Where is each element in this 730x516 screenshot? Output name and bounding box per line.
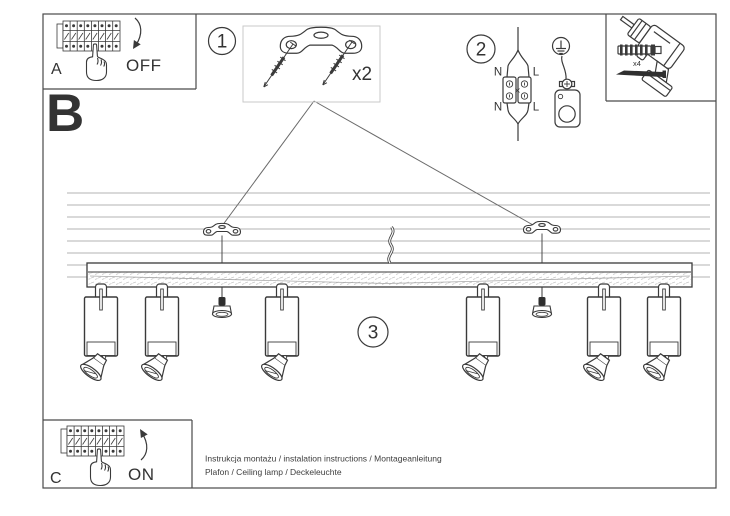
wire-label-l-bottom: L	[533, 102, 540, 114]
breaker-panel-icon-c	[61, 426, 124, 456]
breaker-panel-icon	[57, 21, 120, 51]
leader-lines	[222, 101, 533, 226]
section-c-box: C ON	[43, 420, 192, 488]
off-label: OFF	[126, 56, 162, 75]
spotlight-2	[139, 284, 178, 383]
instruction-drawing: 3 A OFF B 1 x2 2	[0, 0, 730, 516]
step2-number-label: 2	[476, 40, 487, 61]
spotlight-3	[259, 284, 298, 383]
section-b-label: B	[46, 84, 84, 143]
tools-panel: x4	[599, 7, 716, 101]
on-label: ON	[128, 465, 155, 484]
footer-line1: Instrukcja montażu / instalation instruc…	[205, 454, 442, 464]
arrow-up-icon	[140, 429, 148, 460]
section-a-box: A OFF	[43, 14, 196, 89]
instruction-sheet: 3 A OFF B 1 x2 2	[0, 0, 730, 516]
step1-panel: 1 x2	[209, 26, 381, 102]
spotlight-5	[581, 284, 620, 383]
section-a-label: A	[51, 61, 62, 78]
ground-wire	[562, 56, 566, 79]
mounting-bracket-left	[204, 223, 241, 235]
spotlight-1	[78, 284, 117, 383]
arrow-down-icon	[133, 18, 141, 49]
ground-symbol-icon	[553, 38, 570, 55]
wire-label-n-top: N	[494, 67, 502, 79]
power-cable-icon	[389, 227, 393, 263]
anchor-qty-label: x4	[633, 59, 641, 68]
spotlight-4	[460, 284, 499, 383]
fixing-cap-right	[533, 287, 552, 318]
wire-label-l-top: L	[533, 67, 540, 79]
terminal-block-icon	[503, 77, 531, 103]
x2-label: x2	[352, 64, 372, 85]
step-3-number: 3	[358, 317, 388, 347]
spotlight-6	[641, 284, 680, 383]
step3-number-label: 3	[368, 323, 379, 344]
fixing-cap-left	[213, 287, 232, 318]
footer-line2: Plafon / Ceiling lamp / Deckeleuchte	[205, 467, 342, 477]
section-c-label: C	[50, 470, 62, 487]
step1-number-label: 1	[217, 32, 228, 53]
wall-anchor-icon	[618, 45, 661, 56]
track-bar	[87, 263, 692, 287]
ground-clamp-icon	[555, 79, 580, 127]
step2-panel: 2 N L N L	[467, 27, 580, 141]
wire-label-n-bottom: N	[494, 102, 502, 114]
